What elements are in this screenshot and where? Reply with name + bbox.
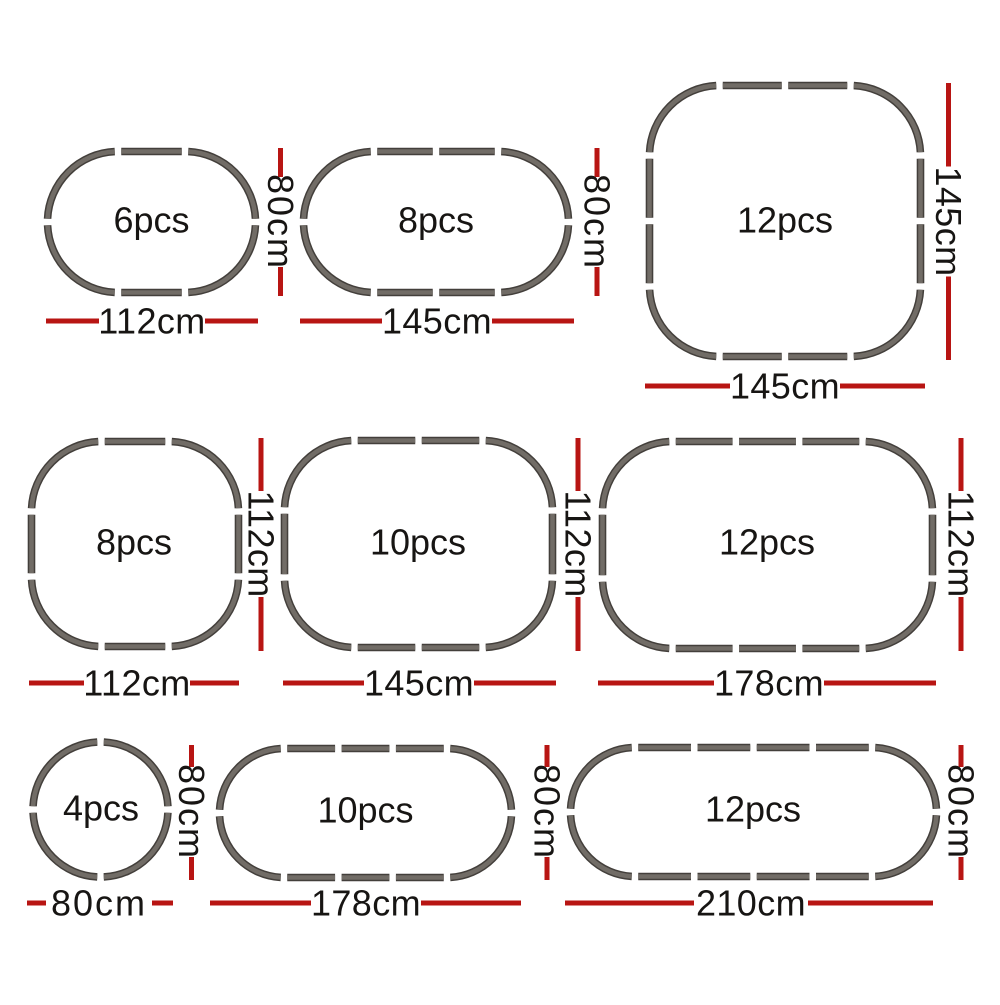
svg-text:80cm: 80cm bbox=[260, 174, 301, 270]
svg-text:80cm: 80cm bbox=[51, 883, 147, 924]
svg-text:145cm: 145cm bbox=[364, 663, 474, 704]
svg-text:145cm: 145cm bbox=[382, 301, 492, 342]
svg-text:112cm: 112cm bbox=[83, 663, 190, 704]
svg-text:12pcs: 12pcs bbox=[705, 789, 801, 830]
svg-text:8pcs: 8pcs bbox=[96, 522, 172, 563]
svg-text:145cm: 145cm bbox=[730, 366, 840, 407]
svg-text:12pcs: 12pcs bbox=[719, 522, 815, 563]
svg-text:112cm: 112cm bbox=[98, 301, 205, 342]
svg-text:80cm: 80cm bbox=[577, 174, 618, 270]
svg-text:10pcs: 10pcs bbox=[370, 522, 466, 563]
svg-text:8pcs: 8pcs bbox=[398, 200, 474, 241]
svg-text:210cm: 210cm bbox=[696, 883, 806, 924]
svg-text:80cm: 80cm bbox=[941, 764, 982, 860]
svg-text:4pcs: 4pcs bbox=[63, 788, 139, 829]
svg-text:112cm: 112cm bbox=[241, 490, 282, 597]
svg-text:112cm: 112cm bbox=[941, 490, 982, 597]
svg-text:12pcs: 12pcs bbox=[737, 200, 833, 241]
svg-text:178cm: 178cm bbox=[311, 883, 421, 924]
svg-text:80cm: 80cm bbox=[527, 764, 568, 860]
svg-text:10pcs: 10pcs bbox=[317, 790, 413, 831]
svg-text:145cm: 145cm bbox=[928, 166, 969, 276]
svg-text:80cm: 80cm bbox=[171, 764, 212, 860]
svg-text:6pcs: 6pcs bbox=[113, 200, 189, 241]
svg-text:178cm: 178cm bbox=[714, 663, 824, 704]
svg-text:112cm: 112cm bbox=[558, 490, 599, 597]
